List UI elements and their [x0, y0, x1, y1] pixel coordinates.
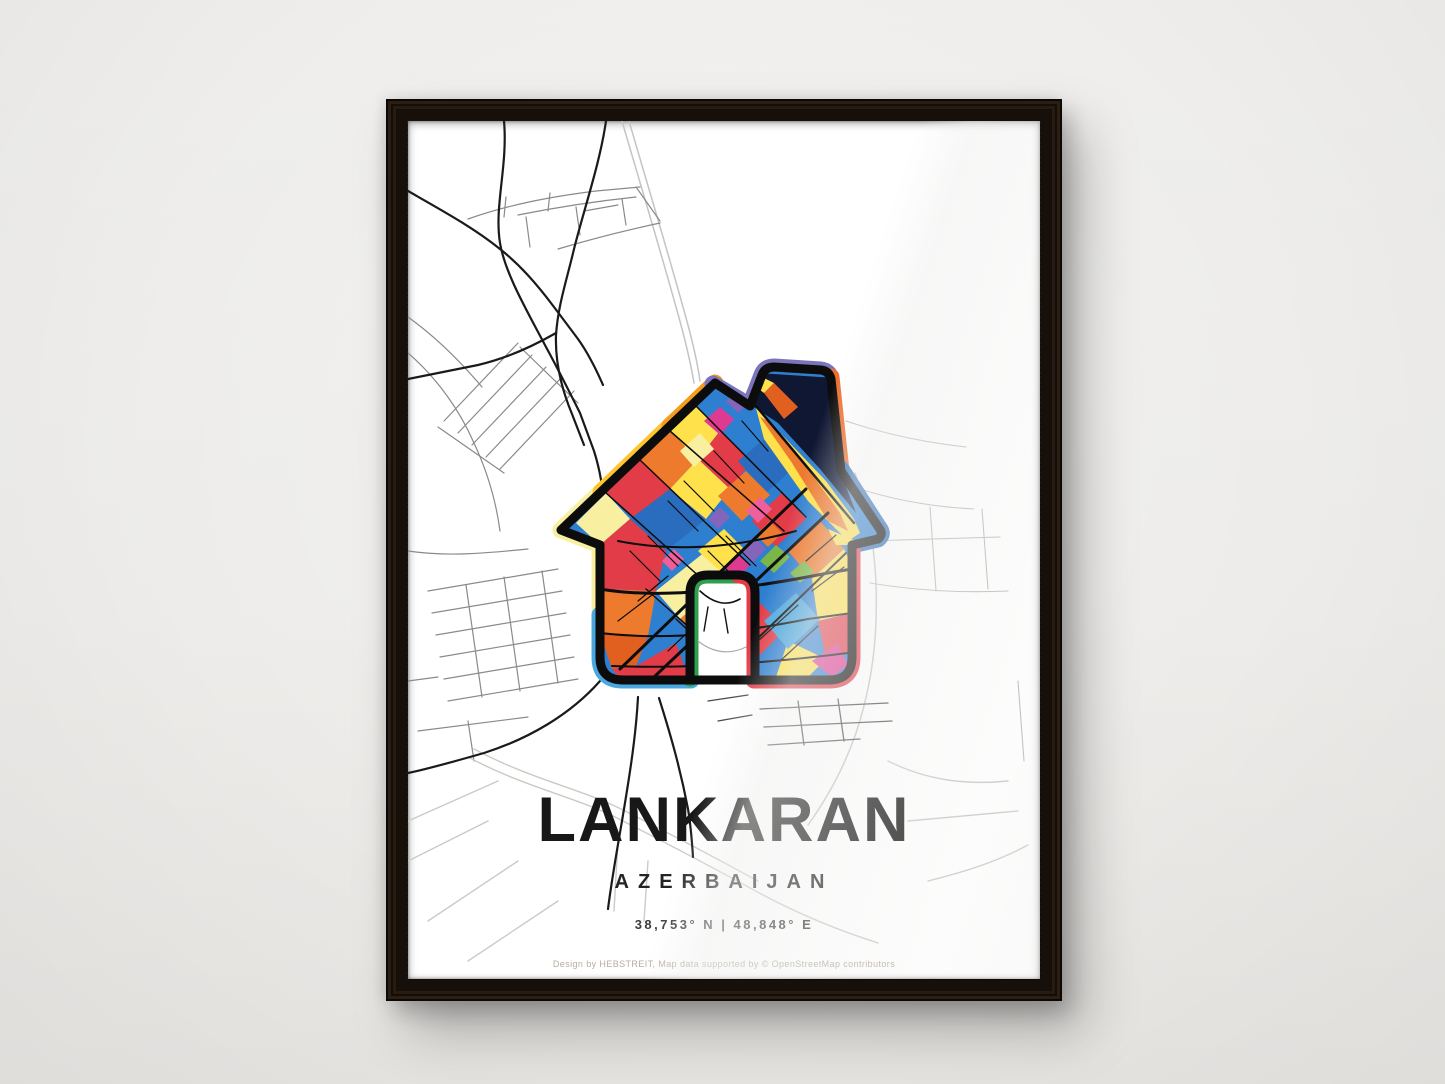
- poster-attribution: Design by HEBSTREIT, Map data supported …: [408, 959, 1040, 969]
- scene: { "scene": { "wall_color": "#edecea", "f…: [0, 0, 1445, 1084]
- poster-title: LANKARAN: [408, 789, 1040, 852]
- icon-door: [698, 591, 746, 652]
- faint-streets-right: [846, 421, 1024, 761]
- ring-door-green: [690, 575, 740, 678]
- picture-frame: LANKARAN AZERBAIJAN 38,753° N | 48,848° …: [386, 99, 1062, 1001]
- poster-country: AZERBAIJAN: [408, 871, 1040, 894]
- poster-coordinates: 38,753° N | 48,848° E: [408, 917, 1040, 932]
- poster: LANKARAN AZERBAIJAN 38,753° N | 48,848° …: [408, 121, 1040, 979]
- house-map-icon: [561, 367, 881, 680]
